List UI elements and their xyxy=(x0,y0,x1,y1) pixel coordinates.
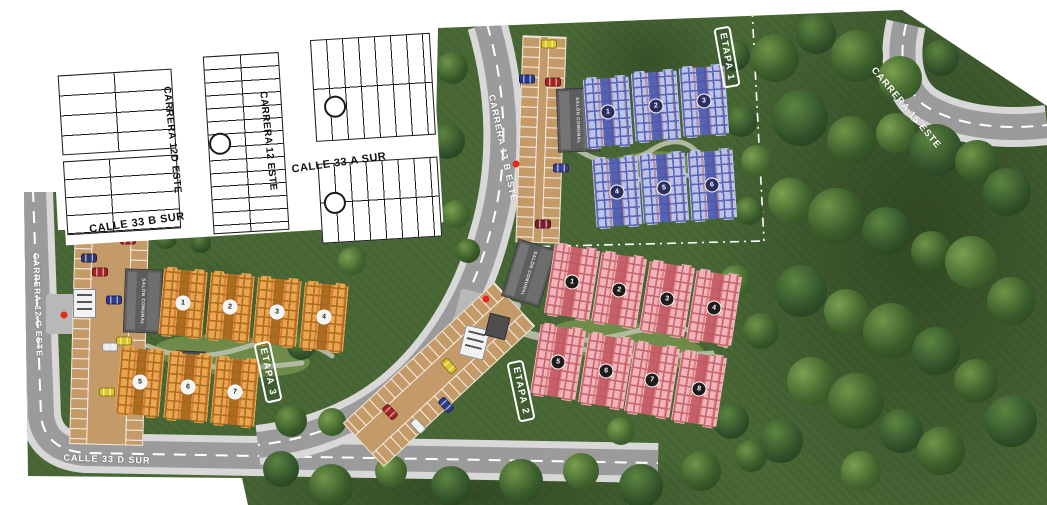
tree-icon xyxy=(827,116,875,164)
tree-icon xyxy=(751,34,799,82)
tree-icon xyxy=(607,417,635,445)
building-block-etapa3-7[interactable]: 7 xyxy=(210,355,260,429)
building-block-etapa3-1[interactable]: 1 xyxy=(158,266,208,340)
clubhouse-label: SALÓN COMUNAL xyxy=(575,97,582,144)
tree-icon xyxy=(741,145,773,177)
entrance-marker xyxy=(483,296,490,303)
building-block-etapa3-2[interactable]: 2 xyxy=(205,270,255,344)
building-block-etapa3-3[interactable]: 3 xyxy=(252,275,302,349)
tree-icon xyxy=(841,451,881,491)
lot-grid xyxy=(55,37,444,246)
tree-icon xyxy=(923,40,959,76)
road-carrera-15 xyxy=(902,24,1047,127)
building-block-etapa3-5[interactable]: 5 xyxy=(115,345,165,419)
car-icon xyxy=(99,388,115,397)
tree-icon xyxy=(954,359,998,403)
tree-icon xyxy=(431,466,471,505)
car-icon xyxy=(92,268,108,277)
tree-icon xyxy=(619,464,663,505)
tree-icon xyxy=(987,277,1035,325)
tree-icon xyxy=(735,440,767,472)
building-block-etapa1-2[interactable]: 2 xyxy=(631,68,682,143)
site-map: SALÓN COMUNAL SALÓN COMUNAL SALÓN COMUNA… xyxy=(0,0,1047,505)
car-icon xyxy=(535,220,551,229)
car-icon xyxy=(102,343,118,352)
tree-icon xyxy=(743,313,779,349)
tree-icon xyxy=(772,90,828,146)
tree-icon xyxy=(983,168,1031,216)
tree-icon xyxy=(338,247,366,275)
tree-icon xyxy=(309,464,353,505)
car-icon xyxy=(106,296,122,305)
clubhouse-building-etapa-3: SALÓN COMUNAL xyxy=(123,268,163,333)
tree-icon xyxy=(985,395,1037,447)
tree-icon xyxy=(735,197,763,225)
gatehouse-etapa-3 xyxy=(73,289,96,318)
tree-icon xyxy=(442,200,470,228)
building-block-etapa1-6[interactable]: 6 xyxy=(687,147,738,222)
tree-icon xyxy=(681,451,721,491)
lot-block xyxy=(58,69,177,156)
building-block-etapa1-1[interactable]: 1 xyxy=(583,74,634,149)
tree-icon xyxy=(275,405,307,437)
tree-icon xyxy=(775,265,827,317)
car-icon xyxy=(81,254,97,263)
lot-block xyxy=(310,33,436,142)
tree-icon xyxy=(828,373,884,429)
tree-icon xyxy=(263,451,299,487)
car-icon xyxy=(116,337,132,346)
building-block-etapa3-4[interactable]: 4 xyxy=(299,280,349,354)
clubhouse-label: SALÓN COMUNAL xyxy=(520,250,538,296)
building-block-etapa1-4[interactable]: 4 xyxy=(592,154,643,229)
entrance-marker xyxy=(61,312,68,319)
tree-icon xyxy=(768,178,812,222)
car-icon xyxy=(553,164,569,173)
car-icon xyxy=(519,75,535,84)
building-block-etapa1-5[interactable]: 5 xyxy=(639,150,690,225)
car-icon xyxy=(545,78,561,87)
tree-icon xyxy=(824,289,868,333)
tree-icon xyxy=(456,239,480,263)
tree-icon xyxy=(917,427,965,475)
tree-icon xyxy=(499,459,543,503)
tree-icon xyxy=(318,408,346,436)
clubhouse-label: SALÓN COMUNAL xyxy=(140,278,147,325)
tree-icon xyxy=(808,188,864,244)
tree-icon xyxy=(862,207,910,255)
entrance-marker xyxy=(513,161,520,168)
tree-icon xyxy=(945,236,997,288)
tree-icon xyxy=(436,52,468,84)
tree-icon xyxy=(912,327,960,375)
tree-icon xyxy=(863,303,919,359)
tree-icon xyxy=(563,453,599,489)
tree-icon xyxy=(796,14,836,54)
car-icon xyxy=(541,40,557,49)
building-block-etapa3-6[interactable]: 6 xyxy=(163,350,213,424)
tree-icon xyxy=(725,105,757,137)
